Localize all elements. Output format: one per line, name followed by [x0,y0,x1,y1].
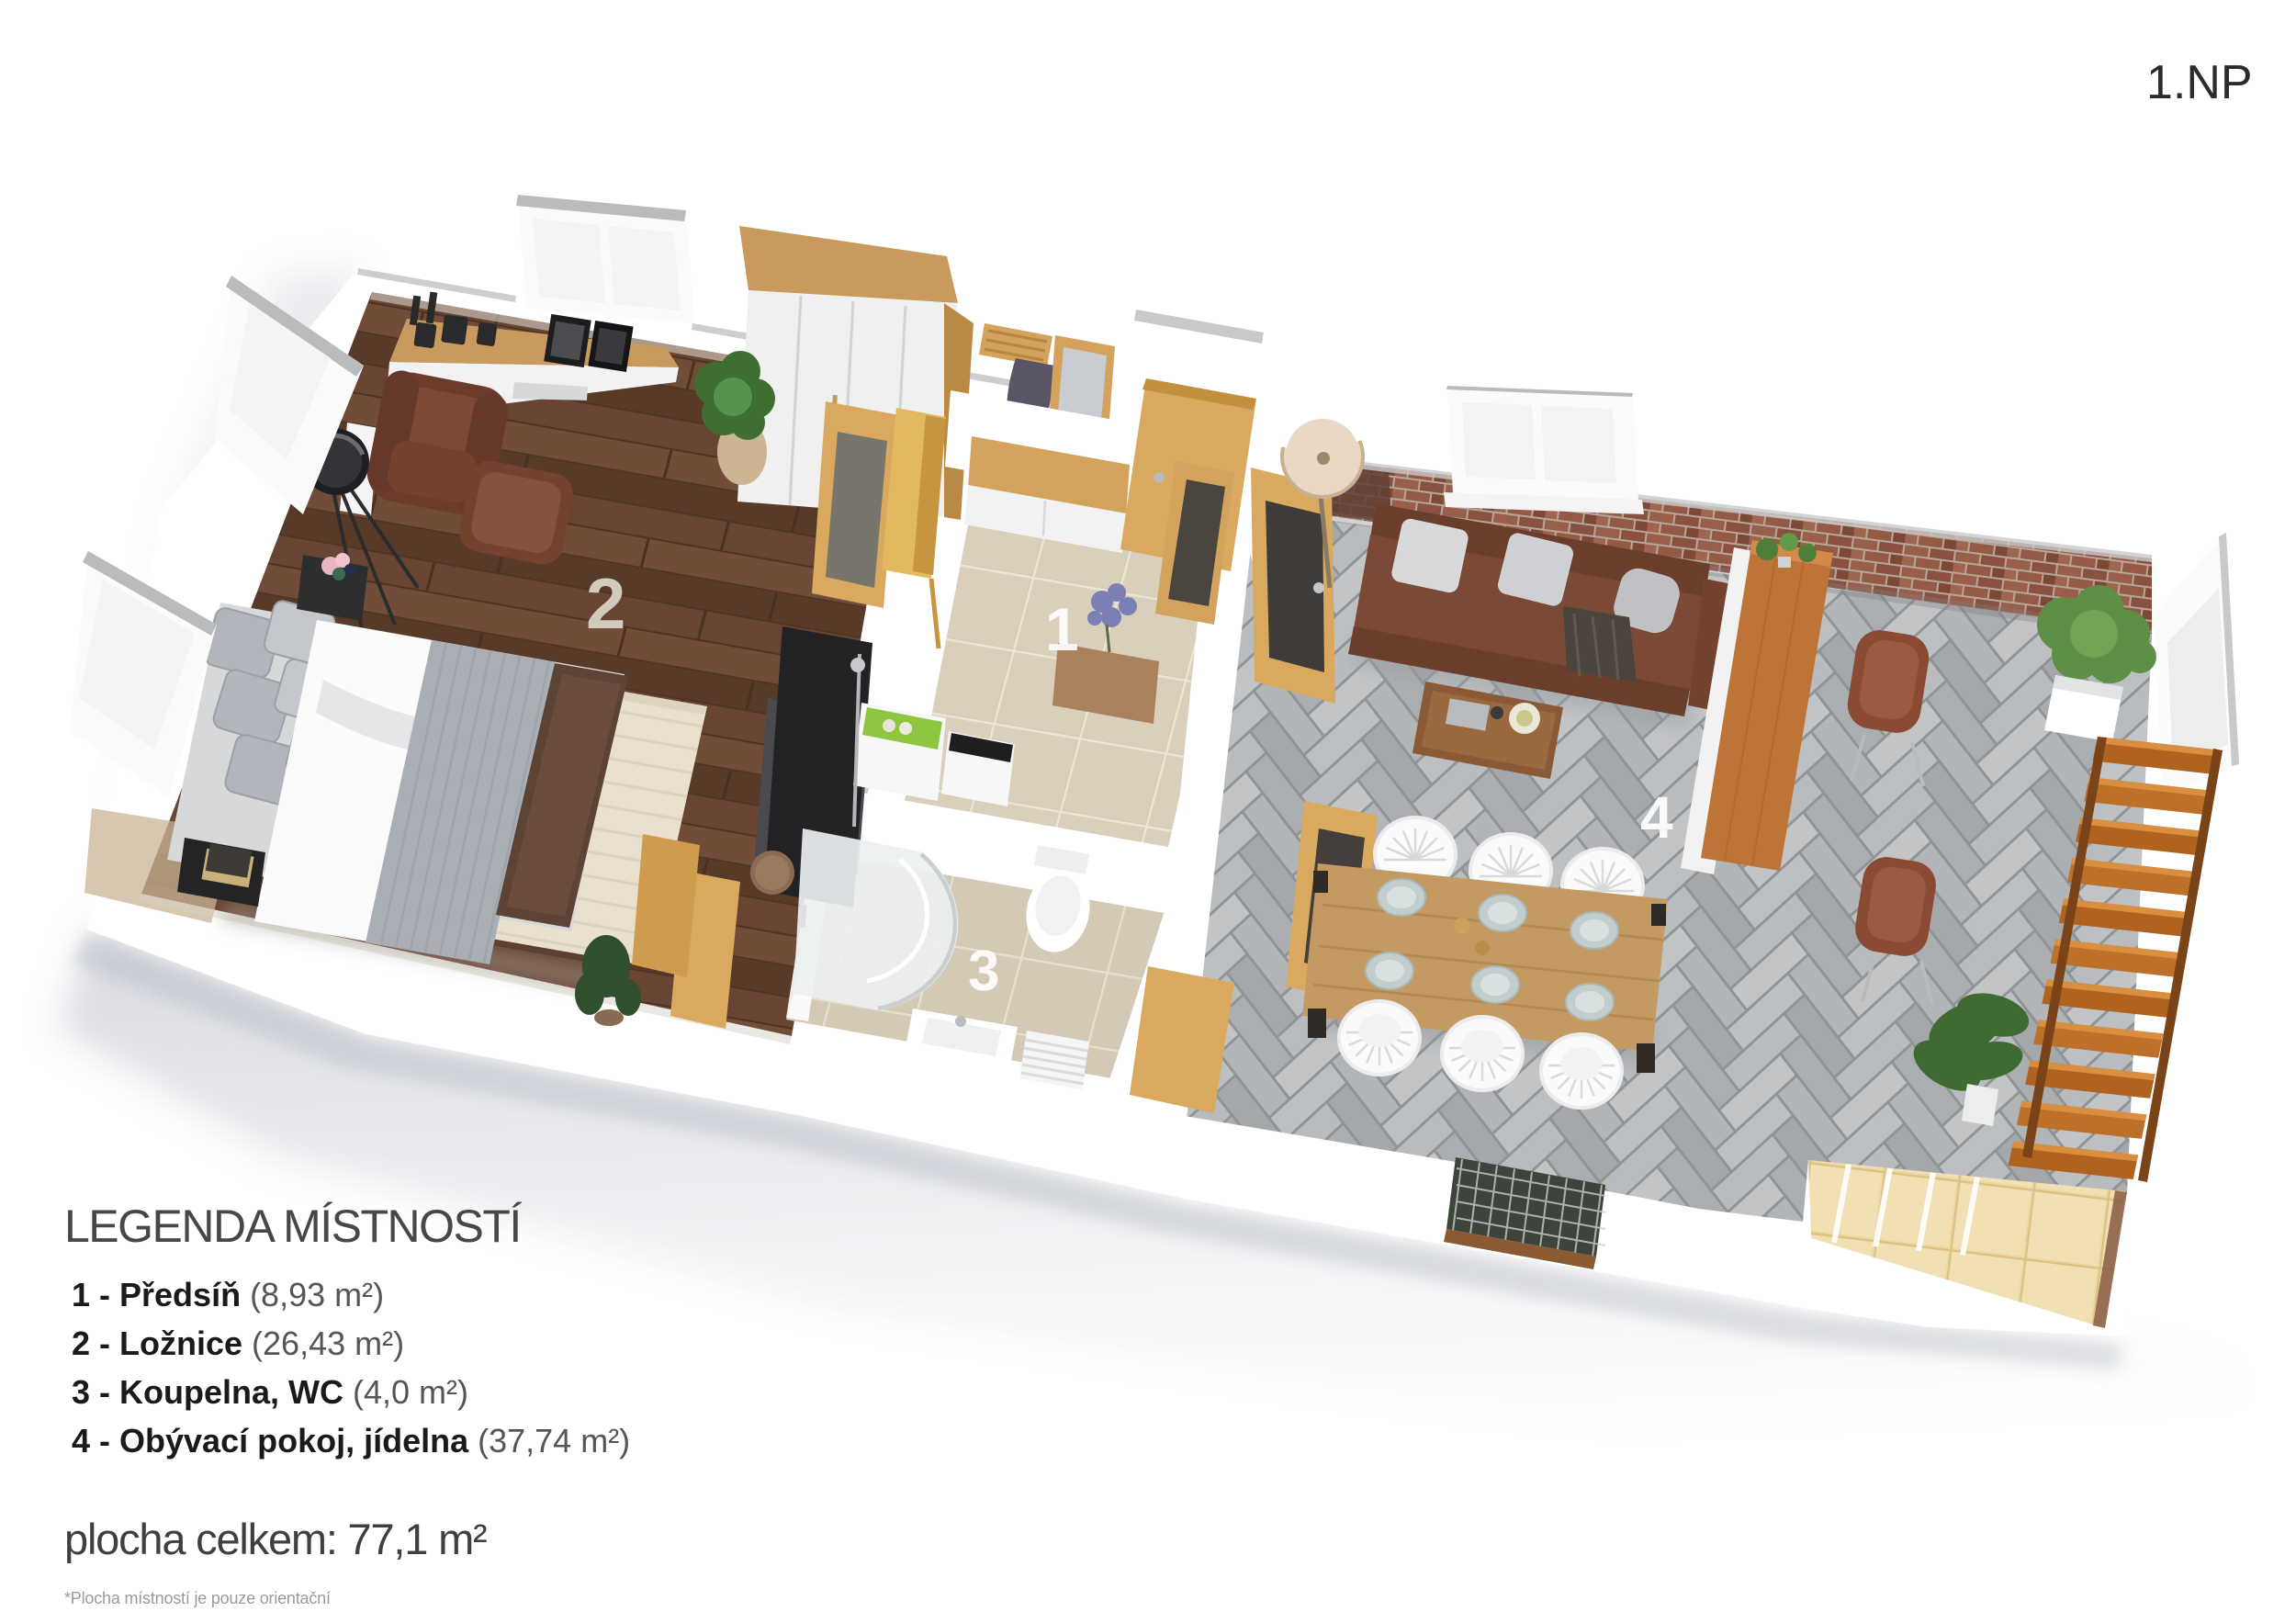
svg-text:2 - Ložnice (26,43 m²): 2 - Ložnice (26,43 m²) [72,1324,404,1362]
svg-text:3 - Koupelna, WC (4,0 m²): 3 - Koupelna, WC (4,0 m²) [72,1373,468,1411]
svg-text:4: 4 [1640,784,1673,851]
svg-text:2: 2 [586,563,625,644]
svg-text:4 - Obývací pokoj, jídelna (37: 4 - Obývací pokoj, jídelna (37,74 m²) [72,1422,630,1460]
svg-text:LEGENDA MÍSTNOSTÍ: LEGENDA MÍSTNOSTÍ [64,1200,522,1252]
svg-text:1: 1 [1045,595,1079,663]
svg-text:1.NP: 1.NP [2146,56,2253,109]
svg-text:*Plocha místností je pouze ori: *Plocha místností je pouze orientační [64,1589,331,1607]
svg-text:plocha celkem: 77,1 m²: plocha celkem: 77,1 m² [64,1515,487,1563]
svg-text:3: 3 [968,940,999,1003]
svg-text:1 - Předsíň (8,93 m²): 1 - Předsíň (8,93 m²) [72,1276,384,1313]
